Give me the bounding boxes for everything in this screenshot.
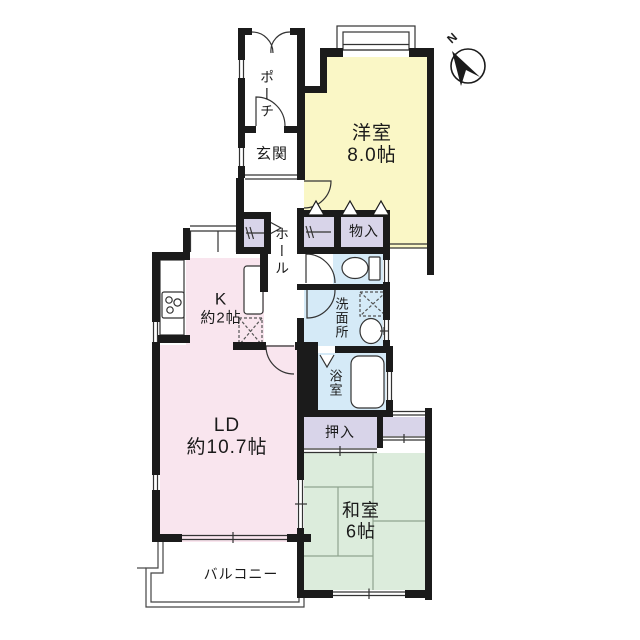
living-dining-label: LD 約10.7帖 [187,415,268,459]
washroom-label: 洗面所 [332,297,351,339]
japanese-room-label: 和室 6帖 [342,500,380,541]
compass-icon: N [444,30,485,86]
side-closet-floor [383,417,425,436]
floor-plan: N ポーチ 玄関 洋室 8.0帖 ホール 物入 洗面所 浴室 K 約2帖 LD … [0,0,640,640]
western-room-size: 8.0帖 [347,145,396,167]
porch-gate-doors [252,32,290,53]
storage-label: 物入 [349,223,379,239]
balcony-label: バルコニー [204,566,279,582]
toilet-door [306,254,335,283]
japanese-room-name: 和室 [342,500,380,521]
floor-plan-drawing: N [0,0,640,640]
living-dining-name: LD [187,415,268,437]
bathtub-icon [351,356,384,408]
entrance-step [245,175,297,179]
kitchen-north-window [190,226,237,252]
kitchen-label: K 約2帖 [200,290,241,327]
bathroom-label: 浴室 [326,369,345,397]
stove-icon [162,292,184,318]
western-room-label: 洋室 8.0帖 [347,123,396,167]
japanese-room-size: 6帖 [342,521,380,542]
oshiire-label: 押入 [325,424,355,440]
hall-label: ホール [272,227,292,278]
kitchen-size: 約2帖 [200,309,241,326]
bay-window [337,26,415,50]
kitchen-name: K [200,290,241,310]
living-dining-size: 約10.7帖 [187,437,268,459]
compass-n-label: N [444,30,460,46]
porch-label: ポーチ [257,70,277,121]
western-room-name: 洋室 [347,123,396,145]
toilet-icon [342,257,380,280]
entrance-label: 玄関 [256,145,288,162]
